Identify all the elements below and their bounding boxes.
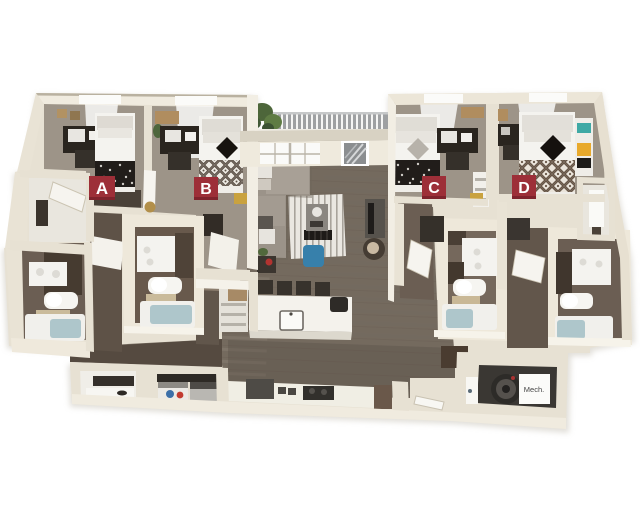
svg-text:Mech.: Mech. xyxy=(524,385,544,394)
svg-text:C: C xyxy=(428,180,440,197)
svg-text:A: A xyxy=(96,179,108,198)
svg-text:B: B xyxy=(200,181,212,198)
svg-text:D: D xyxy=(518,180,530,197)
